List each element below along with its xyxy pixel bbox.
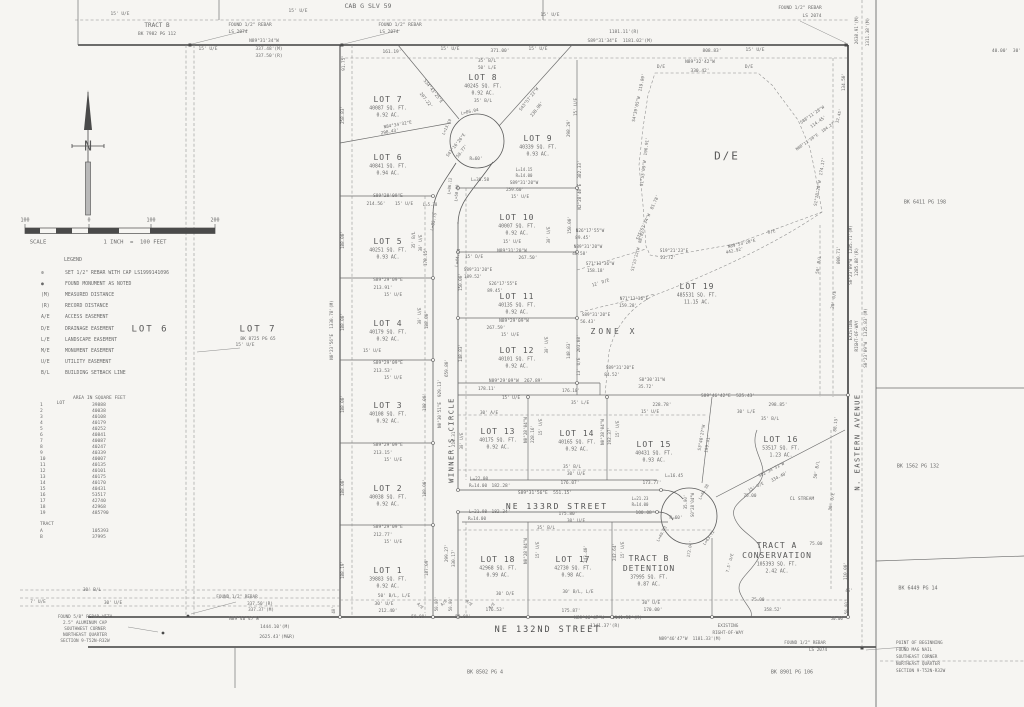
map-label: 11.15 AC. [684,302,710,307]
map-label: R=14.00 [468,518,486,522]
map-label: 40' [332,606,336,613]
map-label: 0.92 AC. [565,449,588,454]
map-label: 110.00' [845,562,849,580]
legend-text: ACCESS EASEMENT [65,315,108,320]
map-label: 75.00 [744,495,757,499]
lot-13-label: LOT 13 [481,428,516,436]
lot-7-adjacent-label: LOT 7 [239,326,276,335]
map-label: L=22.00 [470,478,488,482]
legend-title: LEGEND [64,257,169,263]
street-ne-132nd: NE 132ND STREET [495,626,602,635]
map-label: 35' L/E [571,402,589,406]
map-label: R=14.00 [469,485,487,489]
map-label: 40135 SQ. FT. [498,305,536,310]
map-label: S89°31'34"E 1181.02'(M) [587,40,652,45]
table-row: 19485790 [40,511,109,517]
map-label: 0.92 AC. [505,366,528,371]
map-label: 15' U/E [748,481,765,492]
map-label: 170.00' [644,609,663,614]
map-label: 50' B/L [814,461,821,480]
lot-9-label: LOT 9 [523,135,552,143]
map-label: L=38.58 [471,179,489,183]
map-label: LS 2074 [380,31,399,36]
map-label: 0.93 AC. [642,460,665,465]
map-label: CONSERVATION [742,552,812,560]
map-label: 15' U/E [289,10,308,15]
tract-table-rows: A105393B37995 [40,529,109,541]
map-label: EXISTING [850,320,854,341]
map-label: 40179 SQ. FT. [369,332,407,337]
map-label: 15' U/E [536,542,540,559]
map-label: 0.92 AC. [505,312,528,317]
map-label: 330.42' [691,70,710,75]
map-label: SECTION 9-T52N-R32W [60,640,109,644]
drainage-easement-label: D/E [714,151,740,162]
map-label: 134.50' [843,73,847,91]
map-label: D/E [768,230,777,236]
map-label: 35' B/L [478,60,496,64]
map-label: S89°31'20"E [582,314,610,318]
map-label: N89°46'47"W 1141.32'(M) [574,617,642,622]
map-label: 213.15' [374,452,393,457]
map-label: 35' B/L [537,527,555,531]
map-label: 0 [87,219,90,224]
map-label: 15' U/E [384,294,402,298]
map-label: 88.15' [834,416,840,432]
map-label: 0.87 AC. [637,584,660,589]
map-label: 15' U/E [384,459,402,463]
legend-symbol: ● [38,282,65,287]
lot-8-label: LOT 8 [468,74,497,82]
map-label: BK 1562 PG 132 [897,465,939,470]
map-label: DETENTION [623,565,675,573]
map-label: 30' B/L, L/E [562,591,593,595]
map-label: FOUND 1/2" REBAR [216,596,257,600]
map-label: 30' U/E [547,227,551,244]
map-label: NORTHEAST QUARTER [896,663,940,667]
street-n-eastern-avenue: N. EASTERN AVENUE [855,393,862,490]
map-label: 15' U/E [501,334,519,338]
map-label: N2°28'40"E 382.33' [579,160,583,209]
map-label: 50.00' [845,600,849,614]
map-label: L=85.75 [431,213,438,232]
map-label: 188.00' [426,311,430,329]
map-label: 30' D/E [496,593,514,597]
map-label: 30' U/E [104,602,122,606]
map-label: SOUTHWEST CORNER [64,628,105,632]
map-label: FOUND MAG NAIL [896,649,932,653]
legend-row: M/EMONUMENT EASEMENT [38,346,169,357]
map-label: L=86.04 [461,109,480,117]
map-label: LS 2074 [809,649,827,653]
map-label: 30' U/E [375,603,394,608]
map-label: 188.00' [424,393,428,411]
map-label: 214.31' [453,429,457,447]
lot-3-label: LOT 3 [373,402,402,410]
map-label: 15' U/E [541,14,560,19]
map-label: 30' U/E [419,235,423,252]
map-label: LS 2074 [229,31,248,36]
map-label: 1 INCH = 100 FEET [104,240,167,246]
map-label: A/E [465,599,473,607]
map-label: S1°53'09"W 196.91' [641,137,651,186]
legend-row: A/EACCESS EASEMENT [38,312,169,323]
lot-12-label: LOT 12 [500,347,535,355]
map-label: 84.52' [604,374,620,378]
map-label: 175.80' [559,513,578,518]
legend-symbol: L/E [38,338,65,343]
map-label: L=21.23 [632,497,649,501]
map-label: 1285.88'(R) [856,248,860,276]
map-label: 50.00' [455,616,471,620]
map-label: 56.43' [580,321,596,325]
map-label: 187.09' [426,558,430,576]
legend-text: BUILDING SETBACK LINE [65,371,126,376]
map-label: 334.40' [771,472,789,484]
legend-symbol: A/E [38,315,65,320]
map-label: FOUND 1/2" REBAR [378,24,421,29]
map-label: R=14.00 [516,174,533,178]
map-label: 40.00' [992,50,1008,55]
map-label: S89°46'42"E 525.43' [701,395,755,400]
map-label: 15' U/E [641,411,659,415]
map-label: TRACT B [144,23,169,29]
map-label: 15' U/E [502,397,520,401]
map-label: S89°29'09"E [373,362,403,367]
map-label: 40087 SQ. FT. [369,108,407,113]
lot-2-label: LOT 2 [373,485,402,493]
legend-symbol: (R) [38,304,65,309]
map-label: L=46.38 [698,484,709,501]
map-label: 89.45' [575,237,591,241]
map-label: 40431 SQ. FT. [635,453,673,458]
map-label: 298.29' [568,119,572,137]
map-label: 2.5" ALUMINUM CAP [63,622,107,626]
map-label: 40339 SQ. FT. [519,147,557,152]
map-label: 32.45' [835,109,843,124]
map-label: S4°39'05"W 119.09' [633,74,647,123]
map-label: 53517 SQ. FT. [762,448,800,453]
lot-14-label: LOT 14 [560,430,595,438]
map-label: 158.18' [587,270,605,274]
map-label: A/E [416,602,424,610]
map-label: N89°29'09"W [499,320,529,325]
map-label: 15' U/E [111,13,130,18]
map-label: 40251 SQ. FT. [369,250,407,255]
legend: LEGEND ⊕SET 1/2" REBAR WITH CAP LS199914… [38,257,169,379]
legend-row: U/EUTILITY EASEMENT [38,357,169,368]
map-label: FOUND 1/2" REBAR [784,642,825,646]
map-label: RIGHT-OF-WAY [712,632,743,636]
map-label: BK 8901 PG 106 [771,671,813,676]
map-label: 192.37' [609,427,613,445]
map-label: 0.98 AC. [561,575,584,580]
map-label: 212.40' [379,610,398,615]
legend-symbol: D/E [38,327,65,332]
map-label: 42968 SQ. FT. [479,568,517,573]
map-label: S89°29'09"E [373,279,403,284]
map-label: 35' B/L [474,100,492,104]
map-label: 800.71' [838,246,842,264]
map-label: 188.00' [342,395,346,413]
map-label: S26°17'55"E [489,283,517,287]
map-label: 175.87' [562,610,581,615]
lot-table-col2: AREA IN SQUARE FEET [73,396,126,401]
map-label: 337.50'(R) [247,603,273,607]
map-label: L=5.38 [423,203,437,207]
lot-6-label: LOT 6 [373,154,402,162]
map-label: 0.92 AC. [471,93,494,98]
map-label: N0°28'04"W [525,538,529,564]
map-label: S19°21'23"E [660,250,688,254]
map-label: 30' U/E [829,493,836,512]
map-label: 213.91' [374,287,393,292]
legend-text: MEASURED DISTANCE [65,293,114,298]
map-label: 30' U/E [460,433,464,450]
map-label: 299.27' [446,544,450,562]
lot-15-label: LOT 15 [637,441,672,449]
map-label: 45' [845,589,852,593]
map-label: 371.00' [491,50,510,55]
lot-area-table: LOT AREA IN SQUARE FEET 1398882400383401… [40,396,109,541]
map-label: 50' B/L [817,256,824,275]
legend-symbol: ⊕ [38,271,65,276]
map-label: BK 6411 PG 198 [904,201,946,206]
legend-text: UTILITY EASEMENT [65,360,111,365]
map-label: 0.93 AC. [526,154,549,159]
lot-table-rows: 1398882400383401084401795402526408417400… [40,403,109,517]
map-label: 161.19' [383,51,402,56]
map-label: N89°46'47"W [229,618,259,623]
map-label: 159.28' [619,305,637,309]
map-label: 659.80' [446,359,450,377]
map-label: 1444.10'(M) [260,626,290,631]
map-label: 298.43' [381,129,400,136]
map-label: BK 7982 PG 112 [138,33,176,38]
legend-row: (M)MEASURED DISTANCE [38,290,169,301]
map-label: S89°29'09"E [373,444,403,449]
lot-5-label: LOT 5 [373,238,402,246]
map-label: R=60' [670,517,683,521]
map-label: 15' D/E [465,256,483,260]
map-label: 50' B/L, L/E [378,595,411,600]
map-label: 50.00' [831,617,845,621]
map-label: 1311.38'(M) [867,18,871,46]
map-label: 188.00' [342,478,346,496]
map-label: 330.17' [453,549,457,567]
legend-text: SET 1/2" REBAR WITH CAP LS1999141096 [65,271,169,276]
map-label: 15' U/E [575,98,579,116]
map-label: SCALE [30,240,47,246]
map-label: 75.00 [810,543,823,547]
legend-row: D/EDRAINAGE EASEMENT [38,323,169,334]
map-label: 40165 SQ. FT. [558,442,596,447]
map-label: 15' U/E [395,203,413,207]
map-label: 30' U/E [567,520,585,524]
map-label: L=63.72 [703,530,716,546]
map-label: 178.11' [478,388,496,392]
map-label: 30' B/L [83,589,101,593]
map-label: N0°30'51"E [439,402,443,428]
map-label: 15' U/E [363,350,381,354]
map-label: D/E [745,66,753,71]
map-label: S89°29'09"E [373,526,403,531]
map-label: 298.85' [769,404,788,409]
map-label: 40108 SQ. FT. [369,414,407,419]
map-label: 148.83' [460,344,464,362]
map-label: FOUND 1/2" REBAR [778,7,821,12]
map-label: S89°31'56"E 551.15' [518,492,572,497]
map-label: N89°31'34"W [249,40,279,45]
map-label: 207.22' [418,93,433,110]
map-label: 50.00' [449,597,453,611]
map-label: N89°46'47"W 1181.33'(M) [659,638,721,642]
map-label: S89°31'20"E [606,367,634,371]
map-label: 50.00' [411,616,427,620]
map-label: FOUND 1/2" REBAR [228,24,271,29]
map-label: 105393 SQ. FT. [757,564,797,569]
map-label: 15' U/E [199,48,218,53]
map-label: 15' U/E [503,241,521,245]
map-label: 267.59' [487,327,506,332]
map-label: 13' U/E 203.08' [578,334,582,375]
lot-18-label: LOT 18 [481,556,516,564]
map-label: 100 [20,219,29,224]
map-label: 337.48'(M) [255,48,282,53]
map-label: 75.00 [752,599,765,603]
map-label: 188.00' [342,231,346,249]
map-label: 40175 SQ. FT. [479,440,517,445]
map-label: BK 6449 PG 14 [898,587,937,592]
map-label: 200 [210,219,219,224]
map-label: 358.52' [764,609,782,613]
map-label: 30' U/E [418,308,422,325]
map-label: 173.77' [643,482,662,487]
map-label: S89°31'20"W [510,182,538,186]
tract-row: B37995 [40,535,109,541]
map-label: 188.00' [424,479,428,497]
map-label: 929.13' [439,379,443,397]
map-label: 267.50' [519,257,538,262]
map-label: 0.92 AC. [376,115,399,120]
legend-row: ⊕SET 1/2" REBAR WITH CAP LS1999141096 [38,268,169,279]
legend-rows: ⊕SET 1/2" REBAR WITH CAP LS1999141096●FO… [38,268,169,379]
map-label: 176.10' [562,390,580,394]
map-label: BK 8725 PG 65 [240,338,275,343]
map-label: 189.52' [464,276,482,280]
map-label: 15' U/E [529,48,548,53]
map-label: 23.72' [660,257,676,261]
street-ne-133rd: NE 133RD STREET [506,503,608,511]
map-label: S0°23'09"W 1285.71'(M) [850,225,854,285]
map-label: 35.00' [684,495,688,509]
legend-row: B/LBUILDING SETBACK LINE [38,368,169,379]
map-label: L=44.24 [456,249,463,268]
map-label: 188.00' [342,313,346,331]
map-label: 176.07' [561,482,580,487]
tract-a-label: TRACT A [757,542,798,550]
map-label: 15' U/E [384,377,402,381]
legend-text: MONUMENT EASEMENT [65,349,114,354]
legend-symbol: B/L [38,371,65,376]
map-label: 50.00' [435,597,439,611]
map-label: 2.42 AC. [765,571,788,576]
map-label: L=14.15 [516,168,533,172]
map-label: 42730 SQ. FT. [554,568,592,573]
map-label: 35' B/L [412,232,416,249]
map-label: 15' U/E [236,344,255,349]
map-label: 100.08' [636,512,655,517]
map-label: 30' [1013,50,1021,55]
map-label: 199.41' [705,435,712,454]
zone-x-label: ZONE X [591,328,638,336]
map-label: 150.00' [569,216,573,234]
map-label: LS 2074 [803,15,822,20]
map-label: 40101 SQ. FT. [498,359,536,364]
map-label: L=49.03 [656,526,667,543]
map-label: S89°31'20"E [464,269,492,273]
lot-19-label: LOT 19 [680,283,715,291]
map-label: 259.60' [506,189,524,193]
map-label: 188.19' [342,561,346,579]
map-label: 214.56' [367,203,386,208]
map-label: R=14.00 [632,503,649,507]
map-label: 15' U/E [621,542,625,559]
map-label: N0°23'56"E 1330.78'(M) [331,300,335,360]
map-label: SECTION 9-T52N-R32W [896,670,945,674]
map-label: 1181.11'(R) [609,31,639,36]
map-label: 0.99 AC. [486,575,509,580]
map-label: 30' A/E [480,412,498,416]
map-label: 0.94 AC. [376,173,399,178]
map-label: 7.5' U/E [726,553,735,573]
map-label: 337.37'(M) [248,609,274,613]
map-label: 238.96' [531,102,546,119]
map-label: S89°28'09"E [373,195,403,200]
map-label: 15' U/E [441,48,460,53]
map-label: 15' U/E [384,541,402,545]
legend-symbol: M/E [38,349,65,354]
map-label: 182.34' [492,511,511,516]
map-label: L=16.45 [665,475,683,479]
map-label: S0°23'09"W 1325.83'(M) [865,308,869,368]
map-label: 30' U/E [832,291,839,310]
map-label: 228.16' [532,425,536,443]
lot-4-label: LOT 4 [373,320,402,328]
map-label: L=86.12 [447,177,452,194]
map-label: CL STREAM [790,498,814,503]
map-label: 442.92' [726,248,745,256]
north-arrow-letter: N [84,141,92,154]
map-label: N89°32'42"W [685,61,715,66]
map-label: 337.50'(R) [255,55,282,60]
map-label: 100 [146,219,155,224]
map-label: L=50.00 [454,184,459,201]
map-label: 40038 SQ. FT. [369,497,407,502]
lot-16-label: LOT 16 [764,436,799,444]
map-label: 0.92 AC. [505,233,528,238]
map-label: 40245 SQ. FT. [464,86,502,91]
map-label: EXISTING [718,625,739,629]
legend-symbol: (M) [38,293,65,298]
map-label: S0°28'04"W [691,493,695,517]
map-label: 212.77' [374,534,393,539]
map-label: 808.83' [703,50,722,55]
map-label: S1°23'22"W 88.03' [630,229,645,272]
map-label: N89°31'20"W [497,250,527,255]
lot-1-label: LOT 1 [373,567,402,575]
legend-text: DRAINAGE EASEMENT [65,327,114,332]
